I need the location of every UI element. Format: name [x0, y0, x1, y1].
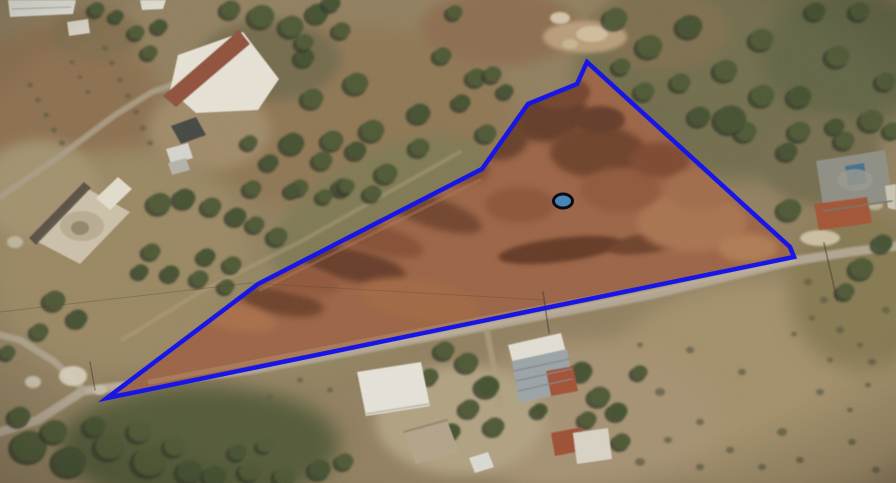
map-viewport[interactable] — [0, 0, 896, 483]
vignette — [0, 0, 896, 483]
satellite-map — [0, 0, 896, 483]
location-marker[interactable] — [554, 194, 573, 208]
